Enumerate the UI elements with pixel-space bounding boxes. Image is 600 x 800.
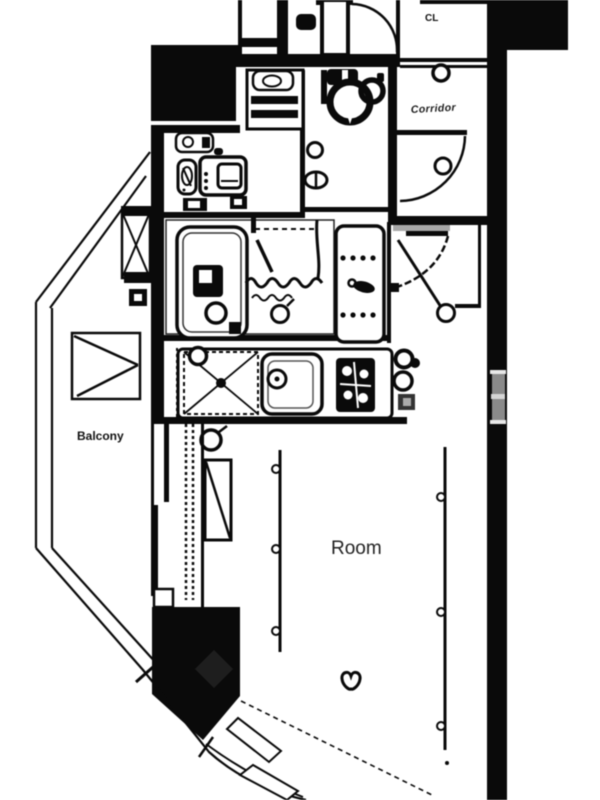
svg-text:CL: CL [425, 13, 438, 24]
svg-text:Balcony: Balcony [77, 429, 124, 443]
svg-text:Corridor: Corridor [411, 102, 457, 116]
svg-text:Room: Room [331, 538, 382, 559]
